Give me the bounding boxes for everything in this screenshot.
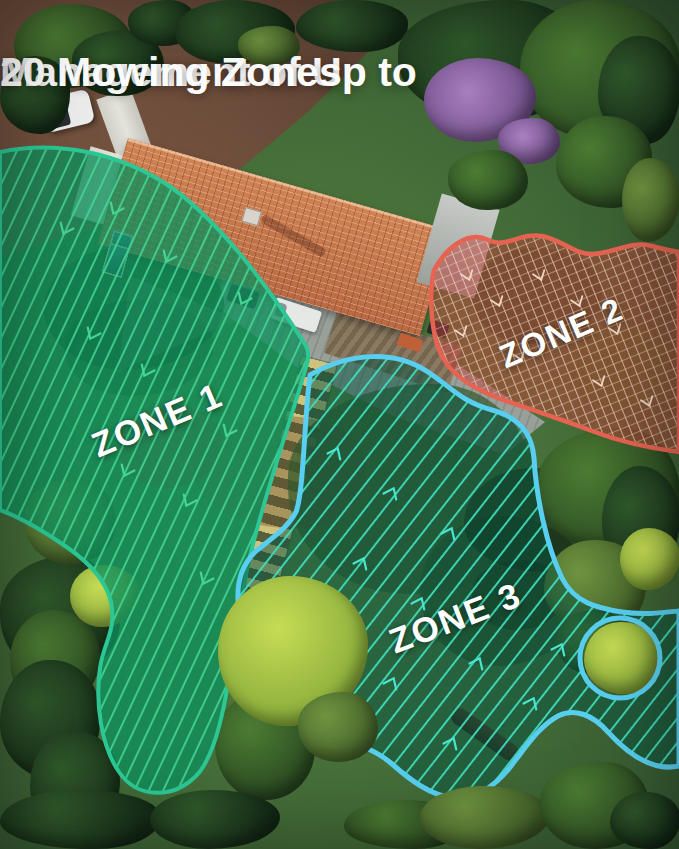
tree bbox=[0, 790, 160, 849]
tree bbox=[622, 158, 679, 242]
tree bbox=[620, 528, 679, 590]
tree bbox=[584, 622, 658, 694]
tree bbox=[610, 792, 679, 849]
tree bbox=[420, 786, 550, 849]
van-windshield bbox=[274, 302, 288, 318]
headline-line-2: 20 Mowing Zones bbox=[0, 48, 342, 96]
tree bbox=[296, 0, 408, 52]
tree bbox=[298, 692, 378, 762]
aerial-yard-scene: ZONE 1 ZONE 2 ZONE 3 Management of Up to… bbox=[0, 0, 679, 849]
fallen-log bbox=[448, 705, 522, 764]
tree bbox=[24, 478, 116, 564]
tree bbox=[150, 790, 280, 849]
tree bbox=[448, 150, 528, 210]
chimney bbox=[241, 207, 261, 226]
tree bbox=[70, 565, 140, 627]
chimney-shadow bbox=[260, 214, 327, 258]
